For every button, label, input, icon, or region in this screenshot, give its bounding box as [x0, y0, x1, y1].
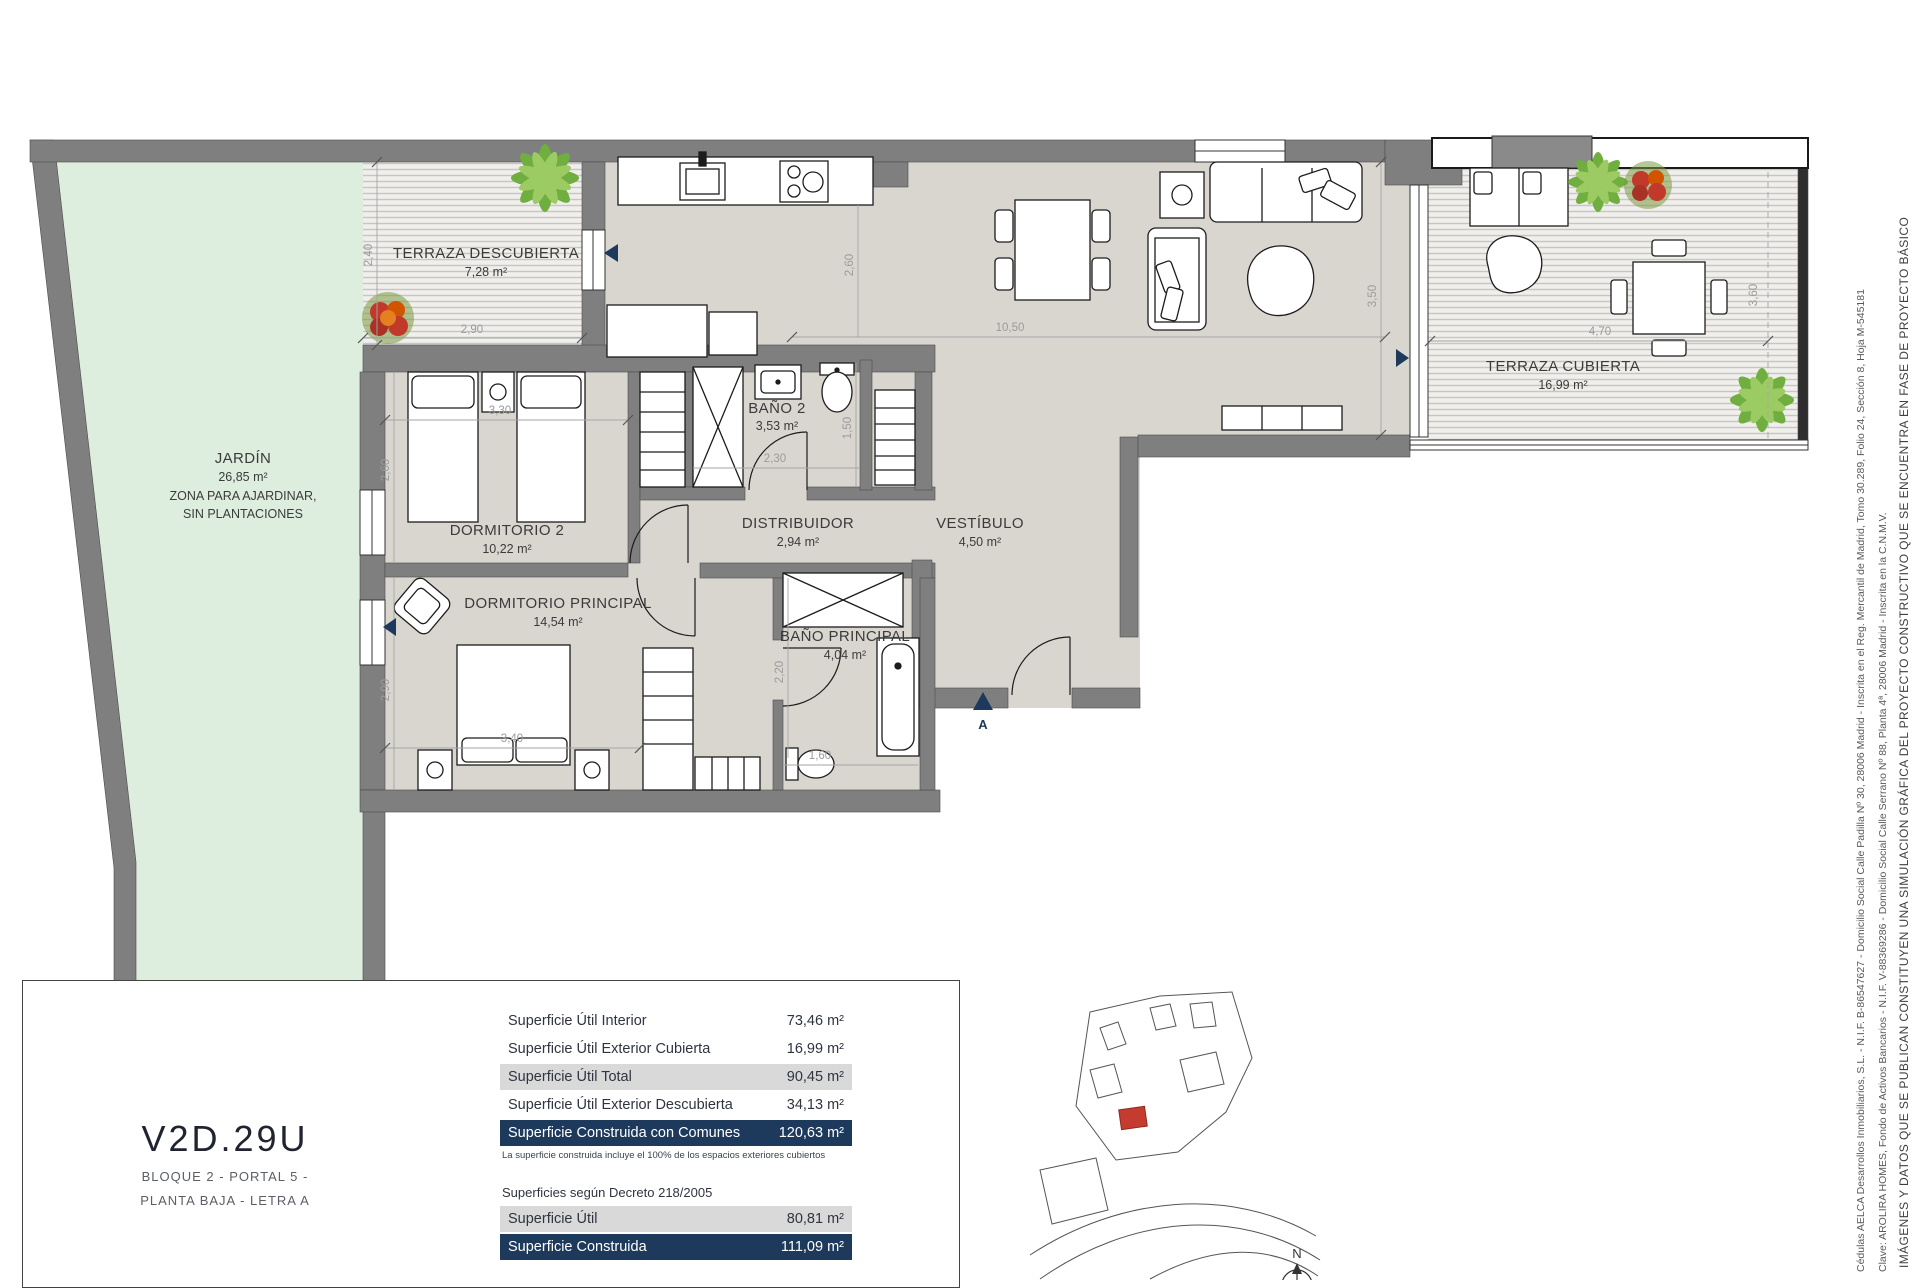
dimension-label: 3,50 — [1367, 285, 1379, 307]
palm-terrace-covered-corner — [1730, 368, 1794, 432]
north-label: N — [1292, 1246, 1301, 1261]
row-label: Superficie Útil Total — [508, 1069, 632, 1085]
room-dormitorio2-area: 10,22 m² — [482, 542, 531, 556]
room-jardin-label: JARDÍN — [215, 450, 272, 467]
bathroom2-sink — [755, 365, 801, 399]
room-distribuidor-area: 2,94 m² — [777, 535, 819, 549]
palm-terrace-uncovered — [511, 144, 579, 212]
entrance-label: A — [978, 717, 988, 732]
terrace-roof-edge — [1432, 138, 1808, 168]
row-label: Superficie Útil Interior — [508, 1013, 647, 1029]
row-label: Superficie Útil Exterior Cubierta — [508, 1041, 710, 1057]
north-compass: N — [1282, 1246, 1312, 1280]
kitchen-counter — [618, 152, 873, 205]
table-row: Superficie Construida 111,09 m² — [500, 1234, 852, 1260]
table-row: Superficie Útil Total 90,45 m² — [500, 1064, 852, 1090]
terrace-uncovered-door — [582, 230, 605, 290]
room-bano-principal-label: BAÑO PRINCIPAL — [780, 628, 910, 645]
table-row: Superficie Útil 80,81 m² — [500, 1206, 852, 1232]
unit-block-portal: BLOQUE 2 - PORTAL 5 - — [90, 1169, 360, 1184]
bedroom2-window — [360, 490, 385, 555]
row-value: 120,63 m² — [779, 1125, 844, 1141]
row-value: 90,45 m² — [787, 1069, 844, 1085]
areas-table: Superficie Útil Interior 73,46 m² Superf… — [500, 1008, 852, 1262]
room-bano2-label: BAÑO 2 — [748, 400, 805, 417]
bush-terrace-covered — [1624, 161, 1672, 209]
side-table-lamp — [1160, 172, 1204, 218]
bathroom2-shower — [693, 367, 743, 487]
dimension-label: 1,60 — [809, 750, 831, 762]
room-vestibulo-label: VESTÍBULO — [936, 515, 1024, 532]
unit-floor-letter: PLANTA BAJA - LETRA A — [90, 1193, 360, 1208]
terrace-egg-chair — [1487, 236, 1542, 293]
row-value: 80,81 m² — [787, 1211, 844, 1227]
disclaimer-line-1: IMÁGENES Y DATOS QUE SE PUBLICAN CONSTIT… — [1896, 217, 1911, 1268]
room-dormitorio2-label: DORMITORIO 2 — [450, 522, 565, 539]
dimension-label: 2,90 — [461, 324, 483, 336]
room-dormitorio-principal-area: 14,54 m² — [533, 615, 582, 629]
dimension-label: 3,60 — [1748, 284, 1760, 306]
kitchen-window — [1195, 140, 1285, 162]
dimension-label: 4,70 — [1589, 326, 1611, 338]
unit-identity: V2D.29U BLOQUE 2 - PORTAL 5 - PLANTA BAJ… — [90, 1118, 360, 1208]
master-shower — [783, 573, 903, 627]
disclaimer-line-2: Clave: AROLIRA HOMES, Fondo de Activos B… — [1877, 512, 1889, 1272]
site-plan-map — [1030, 992, 1320, 1279]
bush-terrace-uncovered — [362, 292, 414, 344]
dimension-label: 3,40 — [501, 733, 523, 745]
row-value: 16,99 m² — [787, 1041, 844, 1057]
dimension-label: 2,60 — [380, 459, 392, 481]
site-plan-unit-highlight — [1119, 1106, 1148, 1129]
sofa — [1210, 162, 1362, 222]
hall-closet — [875, 390, 915, 485]
terrace-sunbed — [1470, 168, 1568, 226]
dimension-label: 2,30 — [764, 453, 786, 465]
dimension-label: 2,90 — [380, 679, 392, 701]
room-terraza-descubierta-area: 7,28 m² — [465, 265, 507, 279]
bathroom2-toilet — [820, 363, 854, 412]
row-label: Superficie Construida con Comunes — [508, 1125, 740, 1141]
master-bathtub — [877, 638, 919, 756]
table-row: Superficie Útil Exterior Cubierta 16,99 … — [500, 1036, 852, 1062]
row-value: 34,13 m² — [787, 1097, 844, 1113]
dimension-label: 10,50 — [996, 322, 1025, 334]
master-bedroom-window — [360, 600, 385, 665]
kitchen-cabinets — [607, 305, 757, 357]
table-row: Superficie Útil Exterior Descubierta 34,… — [500, 1092, 852, 1118]
row-value: 111,09 m² — [781, 1239, 844, 1255]
room-jardin-area: 26,85 m² — [218, 470, 267, 484]
terrace-balustrade — [1410, 440, 1808, 450]
room-vestibulo-area: 4,50 m² — [959, 535, 1001, 549]
rug — [1248, 246, 1314, 316]
tv-sideboard — [1222, 406, 1342, 430]
dimension-label: 2,20 — [774, 661, 786, 683]
nightstand-right — [575, 750, 609, 790]
unit-code: V2D.29U — [90, 1118, 360, 1160]
dimension-label: 3,30 — [489, 405, 511, 417]
bedroom2-wardrobe — [640, 372, 685, 487]
room-bano-principal-area: 4,04 m² — [824, 648, 866, 662]
legal-disclaimers: IMÁGENES Y DATOS QUE SE PUBLICAN CONSTIT… — [1855, 217, 1911, 1272]
kitchen-hob — [780, 161, 828, 202]
floor-plan-sheet: TERRAZA DESCUBIERTA 7,28 m² JARDÍN 26,85… — [0, 0, 1920, 1280]
room-distribuidor-label: DISTRIBUIDOR — [742, 515, 854, 532]
row-label: Superficie Construida — [508, 1239, 647, 1255]
room-dormitorio-principal-label: DORMITORIO PRINCIPAL — [464, 595, 651, 612]
disclaimer-line-3: Cédulas AELCA Desarrollos Inmobiliarios,… — [1855, 289, 1867, 1272]
terrace-right-wall — [1798, 168, 1808, 440]
decree-heading: Superficies según Decreto 218/2005 — [500, 1185, 852, 1200]
nightstand-left — [418, 750, 452, 790]
table-row: Superficie Útil Interior 73,46 m² — [500, 1008, 852, 1034]
room-jardin-note2: SIN PLANTACIONES — [183, 507, 303, 521]
row-label: Superficie Útil Exterior Descubierta — [508, 1097, 733, 1113]
room-bano2-area: 3,53 m² — [756, 419, 798, 433]
dimension-label: 1,50 — [842, 417, 854, 439]
room-terraza-cubierta-area: 16,99 m² — [1538, 378, 1587, 392]
terrace-slider-window — [1410, 185, 1428, 437]
palm-terrace-covered — [1568, 152, 1628, 212]
room-terraza-cubierta-label: TERRAZA CUBIERTA — [1486, 358, 1640, 375]
dimension-label: 2,40 — [363, 244, 375, 266]
armchair — [1148, 228, 1206, 330]
row-label: Superficie Útil — [508, 1211, 597, 1227]
room-terraza-descubierta-label: TERRAZA DESCUBIERTA — [393, 245, 579, 262]
table-row: Superficie Construida con Comunes 120,63… — [500, 1120, 852, 1146]
row-value: 73,46 m² — [787, 1013, 844, 1029]
table-note: La superficie construida incluye el 100%… — [500, 1148, 852, 1161]
dimension-label: 2,60 — [844, 254, 856, 276]
room-jardin-note1: ZONA PARA AJARDINAR, — [169, 489, 316, 503]
north-arrow-icon — [1292, 1263, 1302, 1274]
